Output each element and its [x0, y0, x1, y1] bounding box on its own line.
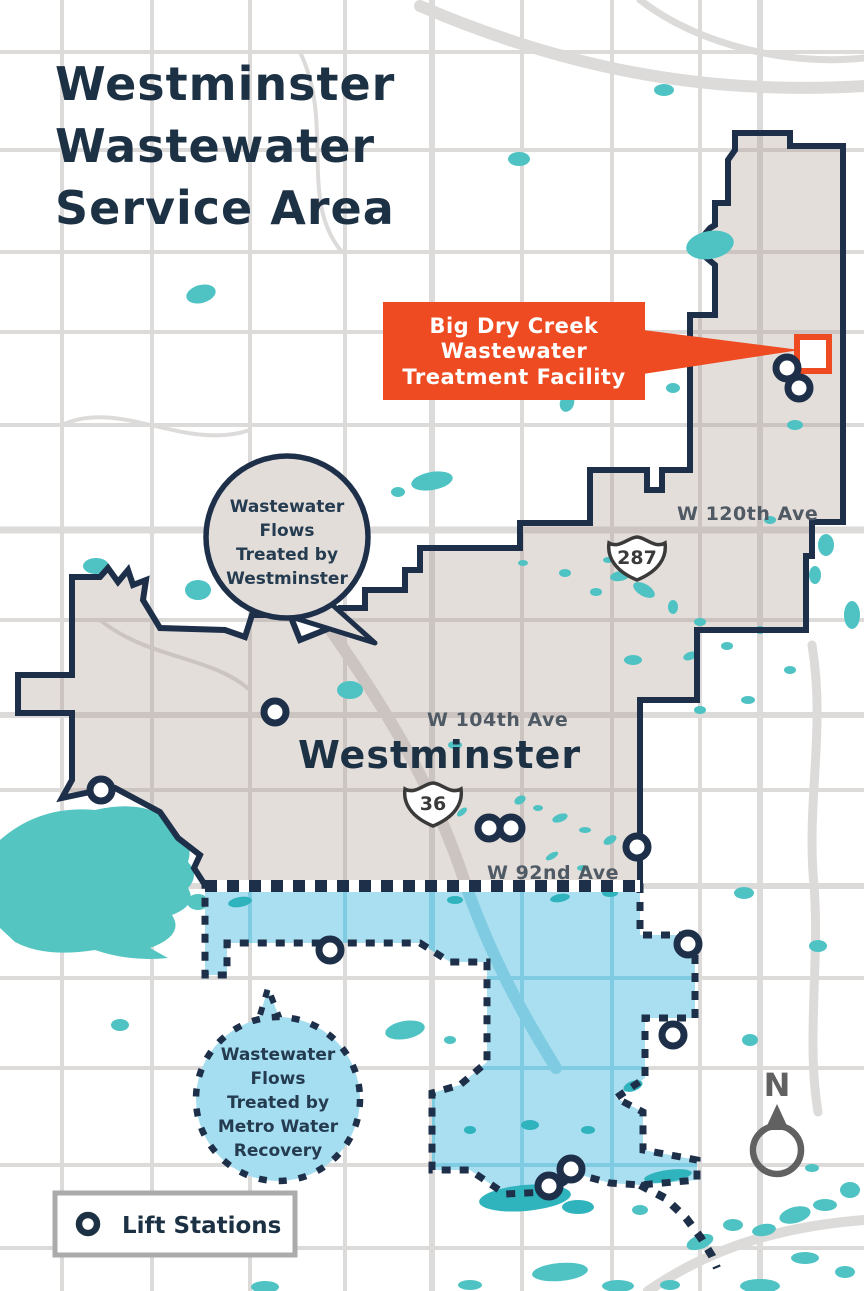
metro-flows-bubble: Wastewater Flows Treated by Metro Water …: [196, 988, 360, 1181]
lift-station: [538, 1175, 560, 1197]
lift-station: [560, 1158, 582, 1180]
metro-bubble-line-3: Treated by: [227, 1093, 329, 1113]
page-title: Westminster Wastewater Service Area: [55, 57, 395, 235]
lift-station: [500, 817, 522, 839]
compass-n-label: N: [764, 1066, 791, 1104]
metro-bubble-line-5: Recovery: [234, 1141, 322, 1161]
road-label-w92: W 92nd Ave: [487, 862, 619, 884]
lift-station: [662, 1024, 684, 1046]
bubble-line-2: Flows: [260, 521, 315, 541]
legend-label: Lift Stations: [122, 1213, 281, 1239]
lift-station: [788, 377, 810, 399]
lift-station: [264, 701, 286, 723]
lift-station: [626, 836, 648, 858]
lift-station: [677, 933, 699, 955]
shield-287-label: 287: [617, 547, 657, 569]
title-line-1: Westminster: [55, 57, 395, 111]
metro-bubble-line-2: Flows: [251, 1069, 306, 1089]
legend: Lift Stations: [55, 1193, 295, 1255]
facility-callout-line-3: Treatment Facility: [402, 365, 625, 389]
map-canvas: W 120th Ave W 104th Ave W 92nd Ave Westm…: [0, 0, 864, 1291]
title-line-2: Wastewater: [55, 119, 375, 173]
map-page: W 120th Ave W 104th Ave W 92nd Ave Westm…: [0, 0, 864, 1291]
standley-lake: [0, 806, 194, 959]
bubble-line-1: Wastewater: [230, 497, 345, 517]
metro-bubble-line-1: Wastewater: [221, 1045, 336, 1065]
title-line-3: Service Area: [55, 181, 395, 235]
lift-station: [90, 779, 112, 801]
facility-square-marker: [797, 337, 829, 371]
bubble-line-3: Treated by: [236, 545, 338, 565]
lift-station: [319, 939, 341, 961]
facility-callout-line-1: Big Dry Creek: [429, 314, 599, 338]
road-label-w104: W 104th Ave: [427, 709, 568, 731]
shield-36-label: 36: [420, 793, 446, 815]
city-label-westminster: Westminster: [298, 733, 581, 777]
road-label-w120: W 120th Ave: [677, 503, 818, 525]
metro-bubble-line-4: Metro Water: [218, 1117, 339, 1137]
lift-station-legend-icon: [79, 1215, 97, 1233]
bubble-line-4: Westminster: [226, 569, 348, 589]
facility-callout-line-2: Wastewater: [441, 339, 588, 363]
